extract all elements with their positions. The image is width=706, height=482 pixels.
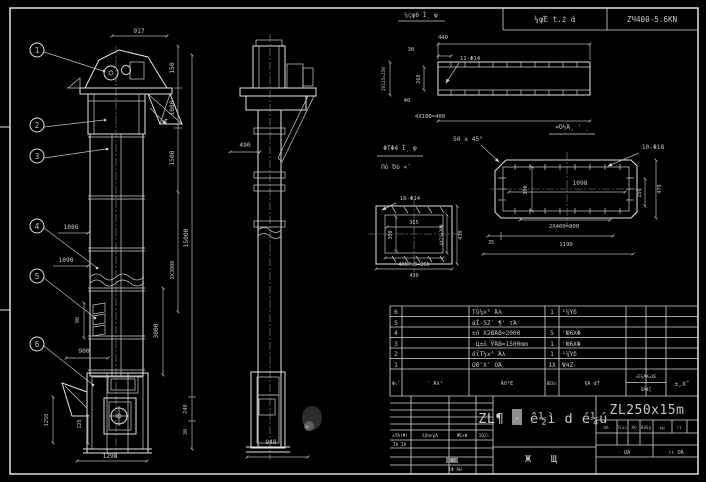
detail-plate-title: ¤Ό½Ά¸ ' ¸ xyxy=(555,123,589,131)
bom-row-material: 'Ю6ΧΦ xyxy=(562,330,581,337)
dim-900: 900 xyxy=(78,348,89,355)
dim-channel-holes: 11-Φ14 xyxy=(460,56,481,62)
bom-footer-code: ' Άλ¹ xyxy=(427,380,443,387)
dim-917: 917 xyxy=(133,28,144,35)
sig-label: ΪΗ ΊΆ xyxy=(393,441,407,448)
dim-flange-300: 300 xyxy=(388,230,394,239)
balloon-5: 5 xyxy=(35,272,40,281)
info-header-cell: Χύ xyxy=(631,424,637,431)
header-project-text: ¼φΈ t.ż ά xyxy=(534,15,576,24)
bom-row-name: άΐΤ¼х° Άλ xyxy=(472,349,506,358)
dim-flange-holes: 16-Φ14 xyxy=(400,196,421,202)
bom-row-no: 3 xyxy=(394,341,398,348)
info-header-cell: Πι±ι xyxy=(617,425,628,431)
rev-header-cell: ±ΫΆ(Ψ) xyxy=(392,432,408,439)
bom-row-name: ±ό Х2ΒΆΒ=2000 xyxy=(472,329,521,337)
sheet-frame xyxy=(0,8,698,474)
revision-area: ±ΫΆ(Ψ) ξΟπερΆ ΨΈ×Φ ΊΟΖι ΪΗ ΊΆ ΞΦΕ ΊΦ ΆΗ xyxy=(392,432,490,473)
bom-row-qty: 1 xyxy=(550,341,554,348)
bom-footer: Φι΅ ' Άλ¹ ΆΟ¹Ε ΒΈΟι §Ά άΤ «Έ¼ΆХ±ΧΕ ΟΆ4ζ … xyxy=(392,373,689,393)
dim-1298: 1298 xyxy=(103,453,118,460)
rev-header-cell: ΨΈ×Φ xyxy=(457,432,468,439)
dim-3000: 3000 xyxy=(153,323,160,338)
rev-header-cell: ΊΟΖι xyxy=(478,432,490,439)
dim-plate-1190: 1190 xyxy=(559,242,572,248)
dim-flange-365: 365 xyxy=(409,220,418,226)
sheet-count-label: · ΟΆ xyxy=(618,449,631,456)
balloon-3: 3 xyxy=(35,152,40,161)
dim-channel-left: 2X125=250 xyxy=(381,67,387,91)
dim-flange-350: 4X87.5=350 xyxy=(398,262,429,268)
bom-footer-weight-sub: ΟΆ4ζ xyxy=(641,386,652,393)
header-model-text: ZЧ400-5.6ΚΝ xyxy=(627,15,678,24)
bom-row-name: άΪ·5Ζ″ ¶' τΆ xyxy=(472,318,517,327)
dim-490: 490 xyxy=(239,142,250,149)
dim-1086: 1086 xyxy=(64,224,79,231)
bom-footer-remark: ±,Х΅ xyxy=(675,378,690,388)
dim-948: 948 xyxy=(265,439,276,446)
bom-row-qty: 5 xyxy=(550,330,554,337)
bom-row-material: ¹¼Ύδ xyxy=(562,350,577,358)
dim-flange-430b: 430 xyxy=(409,273,418,279)
bom-row-qty: 1Х xyxy=(548,362,556,369)
drawing-title: ZL¶ · ê½ì d é¼ú xyxy=(478,411,607,427)
info-header-cell: Ούξγ xyxy=(641,424,652,431)
dim-125: 125 xyxy=(77,419,83,428)
dim-30: 30 xyxy=(183,429,189,435)
bom-row-material: ¹¼Ύδ xyxy=(562,308,577,316)
stamp-text: ΞΦΕ xyxy=(448,458,456,464)
bom-row-qty: 1 xyxy=(550,309,554,316)
approve-label: ΊΦ ΆΗ xyxy=(447,466,462,473)
dim-1080: 1080 xyxy=(169,100,176,115)
dim-1090: 1090 xyxy=(59,257,74,264)
dim-plate-470: 470 xyxy=(657,184,663,193)
bom-row-name: Τΰ¼х° Άλ xyxy=(472,307,502,316)
dim-channel-40: 40 xyxy=(404,98,411,104)
balloon-6: 6 xyxy=(35,340,40,349)
bom-row-no: 6 xyxy=(394,309,398,316)
dim-channel-440: 440 xyxy=(438,35,448,41)
dim-plate-35: 35 xyxy=(488,240,494,246)
dim-plate-vin: 390 xyxy=(523,185,529,194)
cad-drawing-sheet: ¼φΈ t.ż ά ZЧ400-5.6ΚΝ I xyxy=(0,0,706,482)
info-header-cell: πό xyxy=(603,424,609,431)
dim-90: 90 xyxy=(75,317,81,323)
dim-plate-150: 150 xyxy=(637,188,643,197)
bom-row-name: ΟΘ″Х″ ΟΆ xyxy=(472,361,502,369)
balloon-4: 4 xyxy=(35,222,40,231)
model-area: ZL250x15m πό Πι±ι Χύ Ούξγ ±μ ιτ · ΟΆ ιι … xyxy=(603,403,684,456)
detail-flange: ΦΤΦ4 Ì¸ φ Πό Όύ ×¨ 16-Φ14 365 300 4X75=3… xyxy=(368,143,464,279)
detail-plate: ¤Ό½Ά¸ ' ¸ 50 x 45° 10-Φ18 1098 390 150 4… xyxy=(453,123,664,254)
title-area: ZL¶ · ê½ì d é¼ú Ж Щ xyxy=(478,409,607,465)
dim-1500: 1500 xyxy=(169,150,176,165)
detail-flange-subtitle: Πό Όύ ×¨ xyxy=(381,163,411,171)
drawing-subtitle-right: Щ xyxy=(551,454,557,465)
drawing-subtitle-left: Ж xyxy=(525,454,531,465)
dim-plate-chamfer: 50 x 45° xyxy=(453,135,483,143)
dim-flange-right-in: 4X75=300 xyxy=(439,224,445,246)
drawing-canvas: ¼φΈ t.ż ά ZЧ400-5.6ΚΝ I xyxy=(0,0,706,482)
dim-channel-30: 30 xyxy=(408,47,415,53)
dim-channel-bottom: 4X100=400 xyxy=(415,114,445,120)
section-mark-I: I xyxy=(164,118,168,126)
bom-row-material: 'Ю6ΧΦ xyxy=(562,341,581,348)
bom-table: 6 Τΰ¼х° Άλ 1 ¹¼Ύδ 5 άΪ·5Ζ″ ¶' τΆ 4 ±ό Х2… xyxy=(390,306,698,396)
dim-plate-800: 2X400=800 xyxy=(549,224,579,230)
bom-footer-no: Φι΅ xyxy=(392,380,400,387)
rev-header-cell: ξΟπερΆ xyxy=(422,432,438,439)
dim-15000: 15000 xyxy=(183,228,190,247)
detail-flange-title: ΦΤΦ4 Ì¸ φ xyxy=(383,143,417,152)
detail-channel: ¼ςφ6 Ì¸ φ 440 30 11-Φ14 2X125=250 260 40… xyxy=(381,10,590,121)
bom-row-no: 2 xyxy=(394,351,398,358)
dim-plate-holes: 10-Φ18 xyxy=(642,144,665,151)
bom-footer-name: ΆΟ¹Ε xyxy=(501,380,514,387)
balloon-1: 1 xyxy=(35,46,40,55)
bom-row-qty: 1 xyxy=(550,351,554,358)
info-header-cell: ιτ xyxy=(676,426,682,431)
bom-footer-weight: «Έ¼ΆХ±ΧΕ xyxy=(635,373,657,380)
detail-channel-title: ¼ςφ6 Ì¸ φ xyxy=(404,10,438,19)
front-view-dimensions: 917 150 1080 1500 2X3000 3000 15000 240 … xyxy=(44,28,196,461)
dim-plate-1098: 1098 xyxy=(573,180,588,187)
dim-flange-430r: 430 xyxy=(458,230,464,239)
bom-row-no: 5 xyxy=(394,320,398,327)
dim-150: 150 xyxy=(169,62,176,73)
drawing-model: ZL250x15m xyxy=(610,403,685,418)
bom-row-material: Ψ4Ζ· xyxy=(562,362,577,369)
sheet-number-label: ιι ΟΆ xyxy=(668,449,684,456)
balloon-2: 2 xyxy=(35,121,40,130)
title-block: ±ΫΆ(Ψ) ξΟπερΆ ΨΈ×Φ ΊΟΖι ΪΗ ΊΆ ΞΦΕ ΊΦ ΆΗ … xyxy=(390,396,698,474)
dim-channel-web: 260 xyxy=(416,74,422,83)
bom-row-no: 4 xyxy=(394,330,398,337)
bom-footer-qty: ΒΈΟι xyxy=(547,380,558,387)
bom-footer-material: §Ά άΤ xyxy=(584,380,600,387)
side-view: 490 948 xyxy=(230,34,316,460)
dim-1250: 1250 xyxy=(44,414,50,427)
front-view: I 1 2 3 4 5 xyxy=(30,28,196,461)
screen-smudge xyxy=(302,406,322,431)
bom-row-name: ·Ц±ό ЎΆΒ=1500mm xyxy=(472,339,528,348)
dim-2x3000: 2X3000 xyxy=(170,261,176,280)
bom-row-no: 1 xyxy=(394,362,398,369)
top-header: ¼φΈ t.ż ά ZЧ400-5.6ΚΝ xyxy=(503,8,698,30)
dim-240: 240 xyxy=(183,404,189,413)
info-header-cell: ±μ xyxy=(659,426,665,431)
